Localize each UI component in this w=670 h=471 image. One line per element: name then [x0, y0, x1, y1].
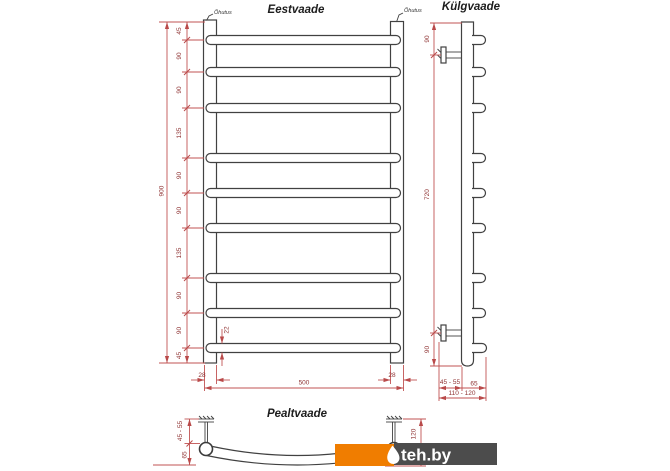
rung-curved-bottom	[206, 344, 401, 353]
rung	[206, 104, 401, 113]
rung	[206, 189, 401, 198]
side-rung	[472, 68, 486, 77]
segment-label: 90	[176, 172, 183, 180]
wall-bracket-top	[438, 47, 462, 63]
stub-left-label: 28	[198, 372, 206, 379]
top-bracket-right	[386, 416, 402, 443]
rung	[206, 154, 401, 163]
vent-label-right: Õhutus	[404, 7, 422, 14]
top-bracket-left	[198, 416, 214, 443]
segment-label: 135	[176, 127, 183, 138]
side-height-dimensions: 90 720 90	[424, 23, 462, 366]
side-rung	[472, 309, 486, 318]
rung	[206, 36, 401, 45]
top-total-depth-label: 120	[411, 428, 418, 439]
side-wall-gap-label: 45 - 55	[440, 379, 461, 386]
segment-label: 90	[176, 52, 183, 60]
rung	[206, 68, 401, 77]
segment-label: 45	[176, 27, 183, 35]
side-bracket-span-label: 720	[424, 189, 431, 200]
side-view: Külgvaade	[424, 1, 501, 401]
vent-label-left: Õhutus	[214, 9, 232, 16]
front-view: Eestvaade Õhutus Õhutus	[159, 4, 422, 391]
side-rung	[472, 189, 486, 198]
rung-diameter-label: 22	[224, 326, 231, 334]
rung	[206, 224, 401, 233]
side-bottom-offset-label: 90	[424, 346, 431, 354]
segment-labels: 45 90 90 135 90 90 135 90 90 45	[176, 27, 183, 359]
side-rung	[472, 274, 486, 283]
side-rung	[472, 154, 486, 163]
towel-rail-drawing: Eestvaade Õhutus Õhutus	[0, 0, 670, 471]
watermark-text: teh.by	[401, 446, 452, 465]
side-total-depth-label: 110 - 120	[449, 390, 476, 397]
side-tube	[462, 22, 474, 366]
top-view-title: Pealtvaade	[267, 408, 328, 420]
rungs	[206, 36, 401, 353]
watermark-orange-block	[335, 444, 394, 466]
width-label: 500	[299, 380, 310, 387]
side-rung	[472, 36, 486, 45]
segment-label: 90	[176, 292, 183, 300]
wall-bracket-bottom	[438, 325, 462, 341]
segment-label: 90	[176, 207, 183, 215]
side-rung-loops	[472, 36, 487, 353]
side-top-offset-label: 90	[424, 35, 431, 43]
segment-label: 135	[176, 247, 183, 258]
stub-right-label: 28	[388, 372, 396, 379]
bottom-dimensions: 28 28 500	[191, 365, 417, 391]
technical-drawing-page: Eestvaade Õhutus Õhutus	[0, 0, 670, 471]
top-left-dimensions: 45 - 55 65	[153, 419, 200, 465]
side-rung	[472, 224, 486, 233]
top-curve-depth-label: 65	[182, 451, 189, 459]
side-rung	[472, 344, 487, 353]
rung	[206, 309, 401, 318]
vent-leader-right	[397, 13, 404, 22]
top-bar-end-left	[200, 443, 213, 456]
segment-label: 90	[176, 86, 183, 94]
rung	[206, 274, 401, 283]
watermark-banner: teh.by	[335, 443, 497, 466]
segment-label: 90	[176, 327, 183, 335]
segment-label: 45	[176, 352, 183, 360]
side-body-depth-label: 65	[470, 381, 478, 388]
side-rung	[472, 104, 486, 113]
top-wall-gap-label: 45 - 55	[177, 421, 184, 442]
overall-height-label: 900	[159, 185, 166, 196]
front-view-title: Eestvaade	[268, 4, 326, 16]
side-view-title: Külgvaade	[442, 1, 501, 13]
height-extension-lines	[159, 22, 205, 363]
